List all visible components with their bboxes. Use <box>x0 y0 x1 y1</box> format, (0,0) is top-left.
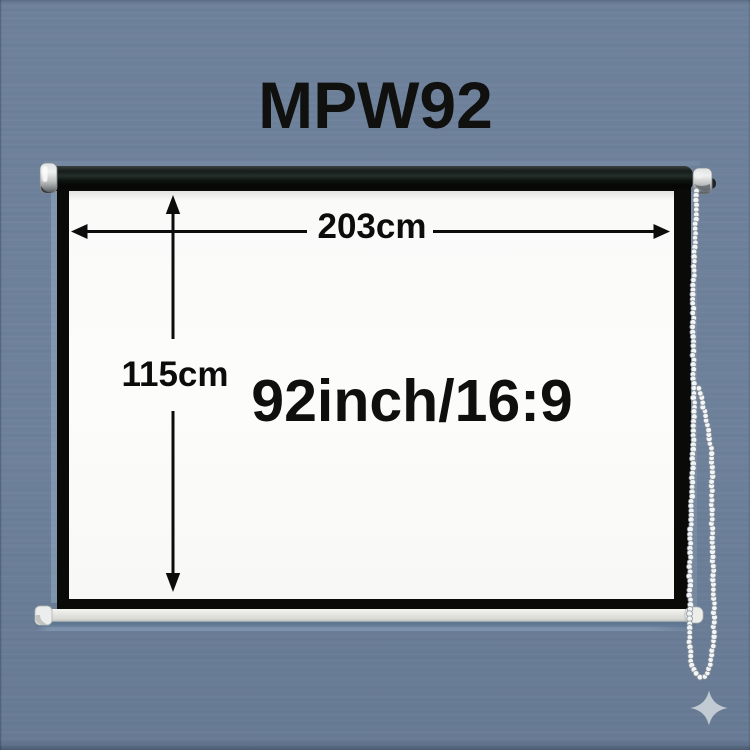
svg-text:115cm: 115cm <box>121 355 228 394</box>
svg-text:92inch/16:9: 92inch/16:9 <box>251 368 572 434</box>
svg-text:203cm: 203cm <box>318 207 427 246</box>
